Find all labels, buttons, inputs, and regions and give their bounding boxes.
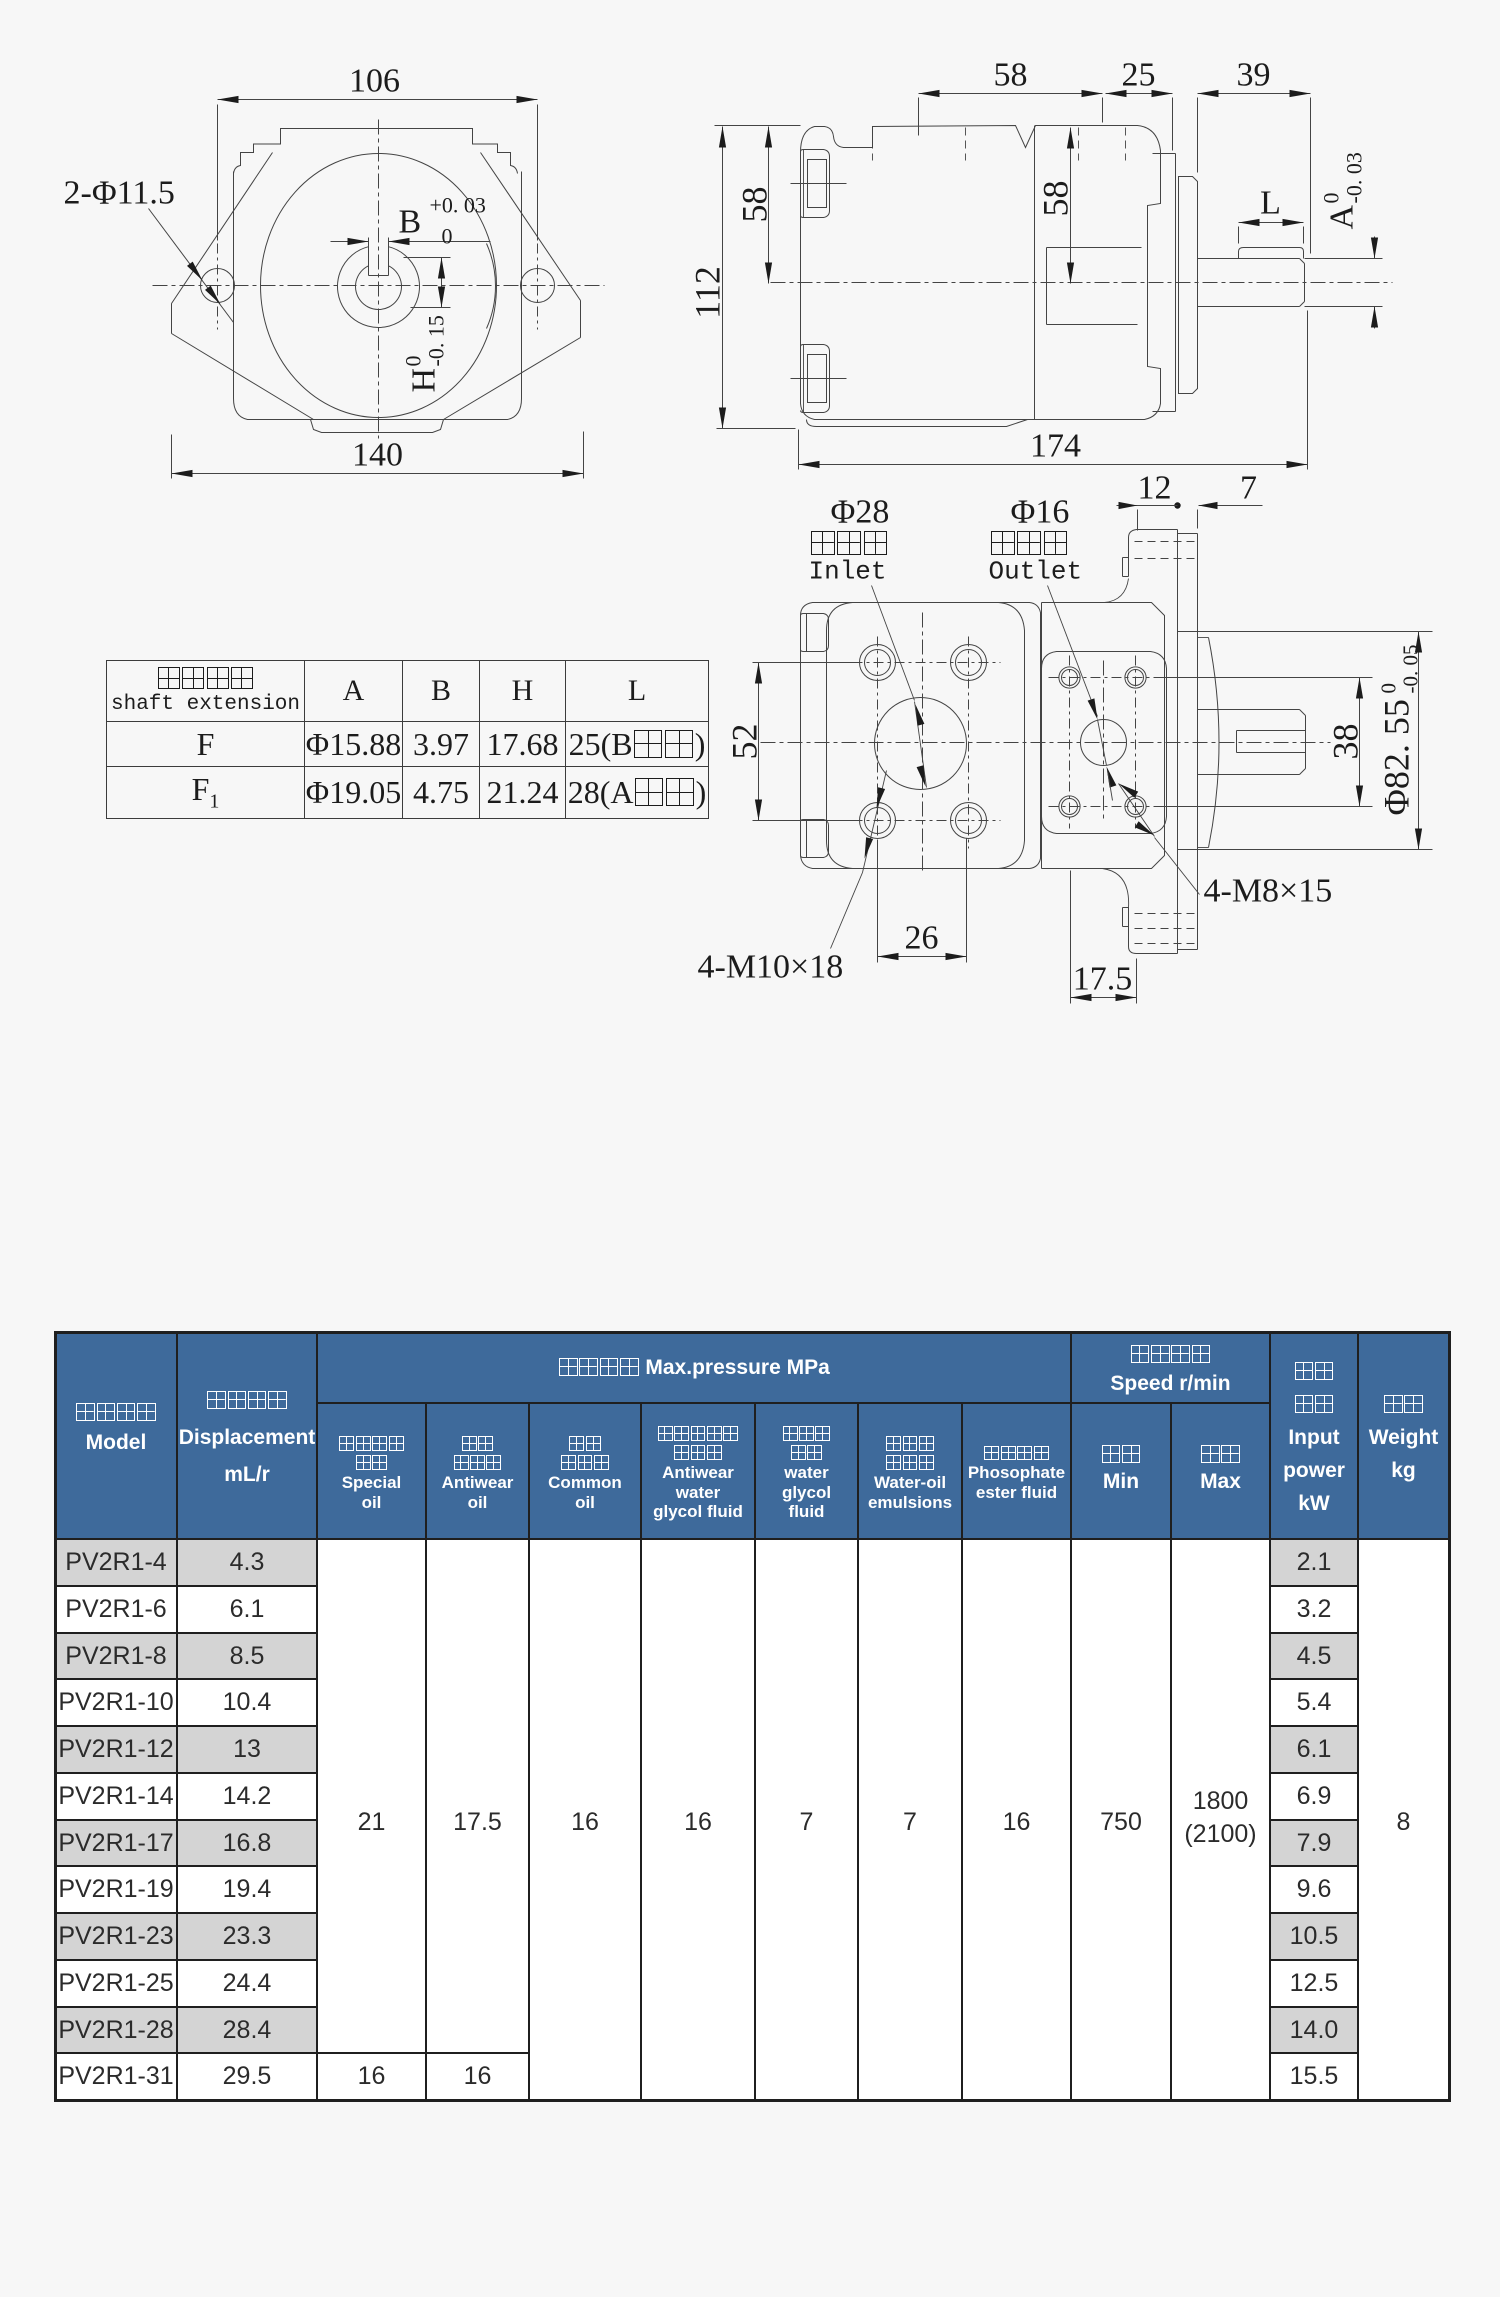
svg-text:58: 58 bbox=[994, 57, 1028, 94]
svg-text:140: 140 bbox=[352, 437, 403, 474]
svg-text:58: 58 bbox=[1036, 181, 1076, 217]
svg-text:-0. 05: -0. 05 bbox=[1399, 645, 1423, 694]
svg-text:-0. 03: -0. 03 bbox=[1342, 152, 1367, 203]
svg-text:112: 112 bbox=[688, 266, 728, 319]
svg-text:0: 0 bbox=[1319, 193, 1344, 204]
svg-text:12: 12 bbox=[1138, 470, 1172, 507]
svg-text:39: 39 bbox=[1237, 57, 1271, 94]
svg-text:B: B bbox=[399, 204, 422, 241]
svg-text:Outlet: Outlet bbox=[989, 557, 1083, 587]
svg-text:2-Φ11.5: 2-Φ11.5 bbox=[64, 175, 175, 212]
svg-text:-0. 15: -0. 15 bbox=[424, 315, 449, 366]
svg-text:106: 106 bbox=[349, 63, 400, 100]
svg-text:L: L bbox=[1260, 185, 1281, 222]
svg-text:58: 58 bbox=[735, 187, 775, 223]
svg-text:Inlet: Inlet bbox=[809, 557, 887, 587]
svg-text:17.5: 17.5 bbox=[1073, 961, 1133, 998]
svg-text:25: 25 bbox=[1122, 57, 1156, 94]
svg-text:52: 52 bbox=[725, 724, 765, 760]
svg-text:Φ28: Φ28 bbox=[831, 494, 890, 531]
svg-text:0: 0 bbox=[401, 356, 426, 367]
svg-text:H: H bbox=[406, 368, 443, 393]
svg-text:174: 174 bbox=[1030, 428, 1081, 465]
svg-text:4-M8×15: 4-M8×15 bbox=[1204, 873, 1333, 910]
svg-text:0: 0 bbox=[1377, 683, 1401, 694]
svg-text:A: A bbox=[1324, 205, 1361, 230]
svg-text:0: 0 bbox=[442, 224, 453, 249]
svg-text:Φ16: Φ16 bbox=[1011, 494, 1070, 531]
svg-text:4-M10×18: 4-M10×18 bbox=[698, 949, 844, 986]
svg-text:7: 7 bbox=[1240, 470, 1257, 507]
svg-text:38: 38 bbox=[1326, 724, 1366, 760]
svg-text:26: 26 bbox=[905, 920, 939, 957]
svg-text:+0. 03: +0. 03 bbox=[430, 193, 486, 218]
svg-text:Φ82. 55: Φ82. 55 bbox=[1377, 699, 1417, 815]
